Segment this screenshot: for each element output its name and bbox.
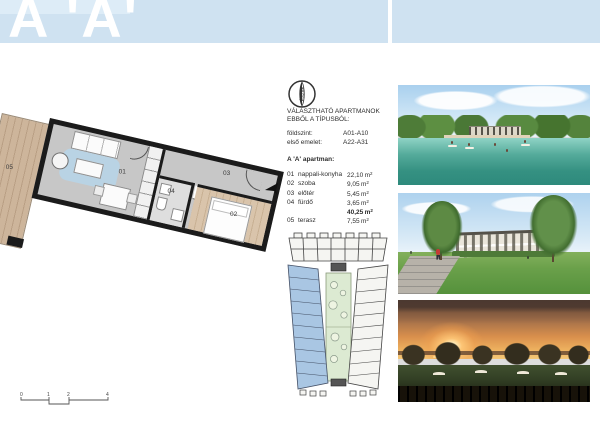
floor-row: első emelet: A22-A31: [287, 139, 391, 148]
room-number: 03: [287, 190, 298, 197]
entry-door-swing: [242, 170, 264, 192]
cursor-arrow-icon: [265, 182, 279, 197]
sunset-photo: [398, 300, 590, 402]
compass-label: Észak: [299, 86, 306, 101]
info-heading-line2: EBBŐL A TÍPUSBÓL:: [287, 116, 391, 124]
info-heading-line1: VÁLASZTHATÓ APARTMANOK: [287, 108, 391, 116]
floor-value: A22-A31: [343, 139, 368, 146]
room-label-hall: 03: [223, 170, 230, 177]
scale-bar: 0 1 2 4: [18, 390, 113, 410]
building-photo: [398, 193, 590, 294]
floor-row: földszint: A01-A10: [287, 130, 391, 139]
bed: [203, 196, 252, 242]
site-key-plan: [286, 231, 390, 403]
swimmer: [494, 143, 496, 146]
paddler: [524, 140, 526, 143]
umbrella: [517, 371, 529, 374]
area-row: 04fürdő 3,65 m2: [287, 199, 391, 208]
area-table: 01nappali-konyha 22,10 m2 02szoba 9,05 m…: [287, 171, 391, 226]
area-row: 03előtér 5,45 m2: [287, 190, 391, 199]
room-name: fürdő: [298, 199, 313, 206]
jogger: [436, 249, 440, 255]
room-label-living: 01: [119, 169, 126, 176]
apartment-outline: 01 02 03 04: [32, 118, 284, 252]
paddleboard: [521, 144, 530, 146]
tree: [529, 195, 579, 258]
room-name: előtér: [298, 190, 314, 197]
lake-photo: [398, 85, 590, 185]
walker: [527, 256, 529, 259]
room-label-bath: 04: [168, 188, 175, 195]
umbrella: [433, 372, 445, 375]
photo-foreground-fence: [398, 386, 590, 402]
room-area: 7,55 m2: [347, 217, 369, 225]
floor-value: A01-A10: [343, 130, 368, 137]
room-name: nappali-konyha: [298, 171, 342, 178]
page-title: A 'A': [8, 0, 139, 43]
compass-icon: Észak: [287, 79, 317, 109]
paddler: [468, 143, 470, 146]
scale-label-0: 0: [20, 392, 23, 398]
apartment-subtitle: A 'A' apartman:: [287, 156, 391, 163]
room-label-bedroom: 02: [230, 211, 237, 218]
washer: [170, 208, 184, 222]
floor-label: első emelet:: [287, 139, 322, 146]
area-row: 02szoba 9,05 m2: [287, 180, 391, 189]
scale-label-4: 4: [106, 392, 109, 398]
area-row: 01nappali-konyha 22,10 m2: [287, 171, 391, 180]
room-name: terasz: [298, 217, 316, 224]
room-area: 3,65 m2: [347, 199, 369, 207]
room-number: 05: [287, 217, 298, 224]
paddleboard: [465, 147, 474, 149]
header-divider: [388, 0, 392, 43]
room-area: 22,10 m2: [347, 171, 373, 179]
tree: [421, 201, 463, 257]
room-area: 9,05 m2: [347, 180, 369, 188]
paddler: [451, 141, 453, 144]
walker: [410, 251, 412, 254]
umbrella: [555, 372, 567, 375]
area-total-row: 40,25 m2: [287, 208, 391, 217]
room-area: 5,45 m2: [347, 190, 369, 198]
umbrella: [475, 370, 487, 373]
scale-label-2: 2: [67, 392, 70, 398]
room-number: 02: [287, 180, 298, 187]
brochure-page: { "header": { "title": "A 'A'" }, "compa…: [0, 0, 600, 424]
room-label-terrace: 05: [6, 164, 13, 171]
floor-label: földszint:: [287, 130, 313, 137]
scale-label-1: 1: [47, 392, 50, 398]
room-number: 04: [287, 199, 298, 206]
room-number: 01: [287, 171, 298, 178]
swimmer: [506, 149, 508, 152]
paddleboard: [448, 145, 457, 147]
header-band: A 'A': [0, 0, 600, 43]
apartment-info: VÁLASZTHATÓ APARTMANOK EBBŐL A TÍPUSBÓL:…: [287, 108, 391, 226]
total-area: 40,25 m2: [347, 208, 373, 216]
toilet: [155, 196, 168, 211]
photo-terrace: [398, 365, 590, 387]
room-name: szoba: [298, 180, 315, 187]
area-row: 05terasz 7,55 m2: [287, 217, 391, 226]
